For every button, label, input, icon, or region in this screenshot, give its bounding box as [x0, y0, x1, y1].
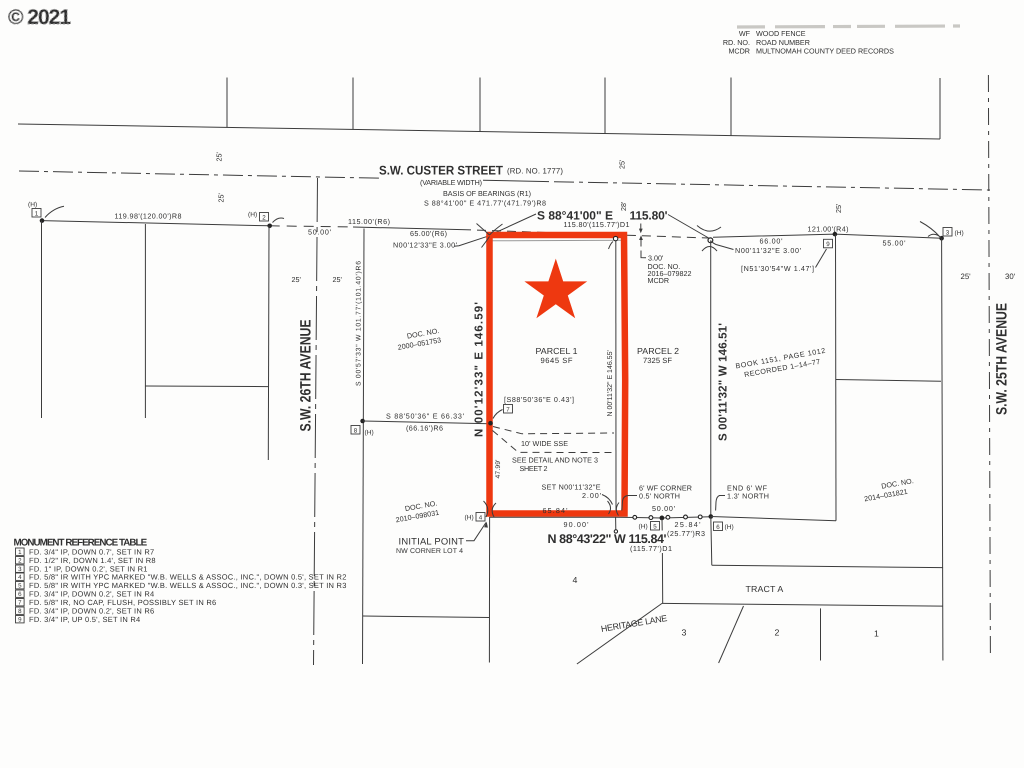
svg-text:2.00': 2.00': [582, 491, 602, 500]
svg-text:2: 2: [262, 214, 266, 221]
svg-text:55.00': 55.00': [883, 239, 907, 248]
svg-text:S 88°41'00" E 471.77'(471.79'): S 88°41'00" E 471.77'(471.79')R8: [424, 199, 546, 208]
svg-text:30': 30': [1005, 272, 1016, 281]
svg-text:N 00'11'32" E 146.55': N 00'11'32" E 146.55': [607, 350, 614, 416]
svg-text:S 88'50'36" E 66.33': S 88'50'36" E 66.33': [386, 412, 465, 421]
svg-text:121.00'(R4): 121.00'(R4): [808, 225, 849, 234]
svg-text:9: 9: [18, 617, 22, 624]
svg-text:S.W. CUSTER STREET: S.W. CUSTER STREET: [379, 164, 503, 178]
svg-text:(H): (H): [465, 515, 474, 522]
svg-text:7325 SF: 7325 SF: [643, 356, 672, 365]
svg-text:9: 9: [826, 241, 830, 248]
svg-text:HERITAGE LANE: HERITAGE LANE: [600, 613, 669, 634]
svg-text:(VARIABLE WIDTH): (VARIABLE WIDTH): [420, 178, 482, 187]
svg-text:N 00'12'33" E 146.59': N 00'12'33" E 146.59': [474, 302, 486, 437]
svg-text:MCDR: MCDR: [728, 46, 750, 55]
svg-text:(H): (H): [248, 212, 257, 219]
svg-text:25': 25': [217, 193, 226, 203]
svg-text:S 00'11'32" W 146.51': S 00'11'32" W 146.51': [718, 323, 730, 441]
svg-text:4: 4: [479, 514, 483, 521]
svg-text:© 2021: © 2021: [8, 6, 71, 29]
svg-text:3: 3: [18, 566, 22, 573]
svg-text:50.00': 50.00': [308, 228, 332, 237]
svg-text:BASIS OF BEARINGS (R1): BASIS OF BEARINGS (R1): [443, 189, 531, 198]
svg-text:115.80': 115.80': [630, 209, 668, 223]
svg-text:(H): (H): [365, 430, 374, 437]
svg-text:8: 8: [18, 608, 22, 615]
svg-text:(66.16')R6: (66.16')R6: [406, 424, 443, 433]
svg-text:WOOD FENCE: WOOD FENCE: [756, 29, 806, 38]
svg-text:5: 5: [653, 523, 657, 530]
svg-text:25': 25': [961, 272, 972, 281]
svg-text:N00'11'32"E 3.00': N00'11'32"E 3.00': [735, 246, 802, 255]
svg-text:119.98'(120.00')R8: 119.98'(120.00')R8: [115, 212, 182, 221]
svg-text:6: 6: [18, 591, 22, 598]
svg-text:S 00'57'33" W 101.77'(101.40'): S 00'57'33" W 101.77'(101.40')R6: [356, 261, 363, 386]
svg-text:115.80'(115.77')D1: 115.80'(115.77')D1: [564, 220, 630, 229]
svg-text:7: 7: [506, 406, 510, 413]
svg-text:[N51'30'54"W 1.47']: [N51'30'54"W 1.47']: [741, 264, 814, 273]
svg-text:2: 2: [775, 628, 780, 638]
svg-text:3: 3: [682, 628, 687, 638]
svg-text:7: 7: [18, 600, 22, 607]
svg-text:INITIAL POINT: INITIAL POINT: [399, 536, 465, 547]
svg-text:65.00'(R6): 65.00'(R6): [410, 229, 447, 238]
svg-text:MULTNOMAH COUNTY DEED RECORDS: MULTNOMAH COUNTY DEED RECORDS: [756, 46, 894, 55]
svg-text:(RD. NO. 1777): (RD. NO. 1777): [507, 167, 563, 176]
svg-text:90.00': 90.00': [564, 520, 590, 529]
svg-text:PARCEL 2: PARCEL 2: [637, 346, 680, 356]
svg-text:0.5' NORTH: 0.5' NORTH: [639, 492, 680, 501]
svg-text:1.3' NORTH: 1.3' NORTH: [727, 492, 769, 501]
svg-text:WF: WF: [739, 29, 751, 38]
svg-text:1: 1: [18, 549, 22, 556]
svg-text:S.W. 25TH AVENUE: S.W. 25TH AVENUE: [994, 303, 1011, 415]
svg-text:N00'12'33"E 3.00': N00'12'33"E 3.00': [393, 241, 458, 250]
svg-text:6: 6: [716, 524, 720, 531]
svg-text:4: 4: [573, 575, 578, 585]
svg-text:9645 SF: 9645 SF: [541, 356, 573, 365]
svg-text:25': 25': [215, 152, 224, 162]
svg-text:66.00': 66.00': [760, 237, 784, 246]
svg-text:(H): (H): [725, 524, 734, 531]
svg-text:PARCEL 1: PARCEL 1: [536, 346, 579, 356]
svg-text:3: 3: [946, 229, 950, 236]
svg-text:S.W. 26TH AVENUE: S.W. 26TH AVENUE: [298, 320, 315, 432]
svg-text:(25.77')R3: (25.77')R3: [667, 529, 705, 538]
svg-text:1: 1: [35, 210, 39, 217]
svg-text:65.84': 65.84': [543, 506, 569, 515]
svg-text:50.00': 50.00': [652, 504, 676, 513]
svg-text:NW CORNER LOT 4: NW CORNER LOT 4: [396, 548, 463, 555]
svg-text:MCDR: MCDR: [648, 276, 670, 285]
svg-text:25': 25': [834, 203, 843, 213]
svg-text:4: 4: [18, 574, 22, 581]
svg-text:8: 8: [354, 427, 358, 434]
svg-text:(H): (H): [955, 230, 964, 237]
svg-text:28': 28': [619, 201, 628, 211]
svg-text:TRACT A: TRACT A: [746, 584, 785, 594]
svg-text:(115.77')D1: (115.77')D1: [630, 544, 672, 553]
svg-text:47.99': 47.99': [495, 460, 502, 479]
svg-text:25': 25': [292, 275, 302, 284]
svg-text:2: 2: [18, 558, 22, 565]
svg-text:[S88'50'36"E 0.43']: [S88'50'36"E 0.43']: [504, 395, 574, 404]
svg-text:1: 1: [874, 629, 879, 639]
svg-text:10' WIDE SSE: 10' WIDE SSE: [521, 439, 568, 448]
svg-text:(H): (H): [28, 202, 37, 209]
svg-text:(H): (H): [639, 523, 648, 530]
svg-text:25': 25': [618, 159, 627, 169]
svg-text:115.00'(R6): 115.00'(R6): [348, 217, 390, 226]
svg-text:5: 5: [18, 583, 22, 590]
svg-text:25': 25': [333, 275, 343, 284]
svg-text:25.84': 25.84': [675, 520, 702, 529]
svg-text:SHEET 2: SHEET 2: [520, 464, 548, 473]
svg-text:FD. 3/4" IP, UP 0.5', SET IN R: FD. 3/4" IP, UP 0.5', SET IN R4: [29, 615, 140, 624]
